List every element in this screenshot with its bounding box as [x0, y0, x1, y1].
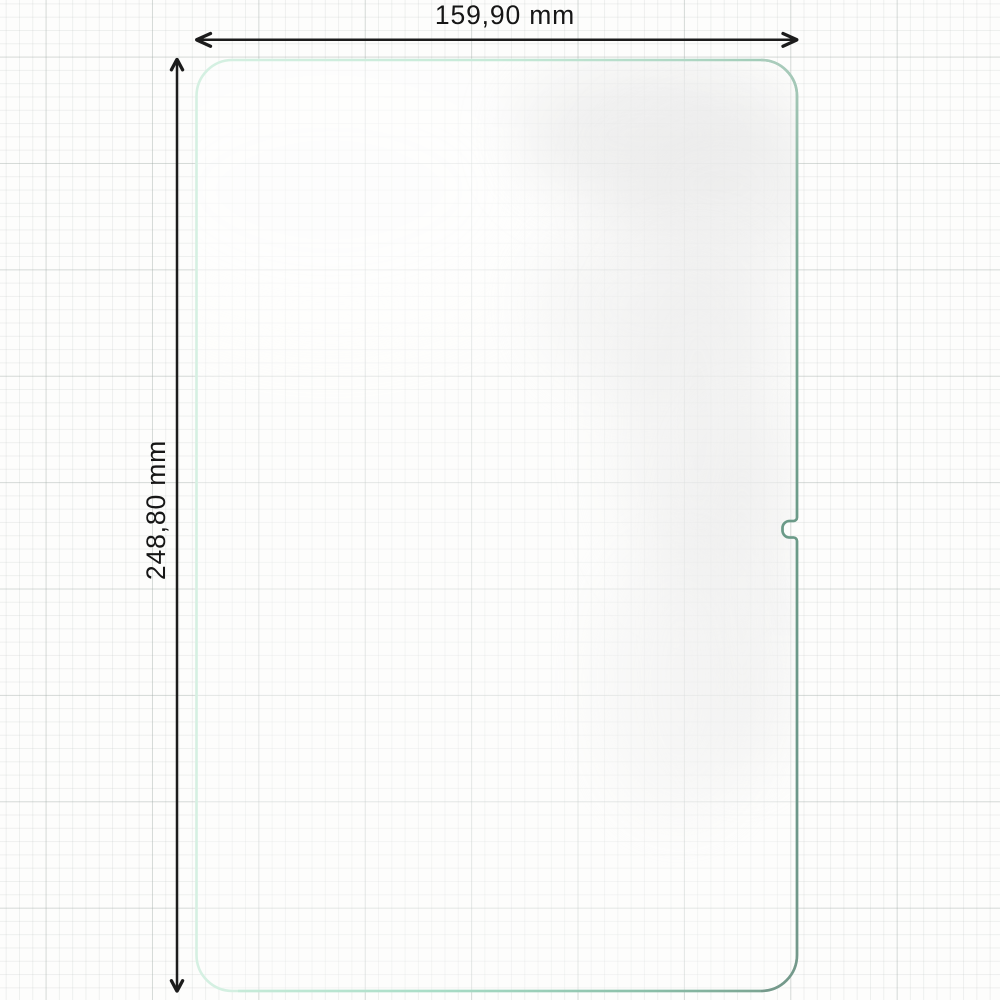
svg-text:159,90 mm: 159,90 mm	[435, 0, 575, 30]
svg-text:248,80 mm: 248,80 mm	[141, 440, 171, 580]
